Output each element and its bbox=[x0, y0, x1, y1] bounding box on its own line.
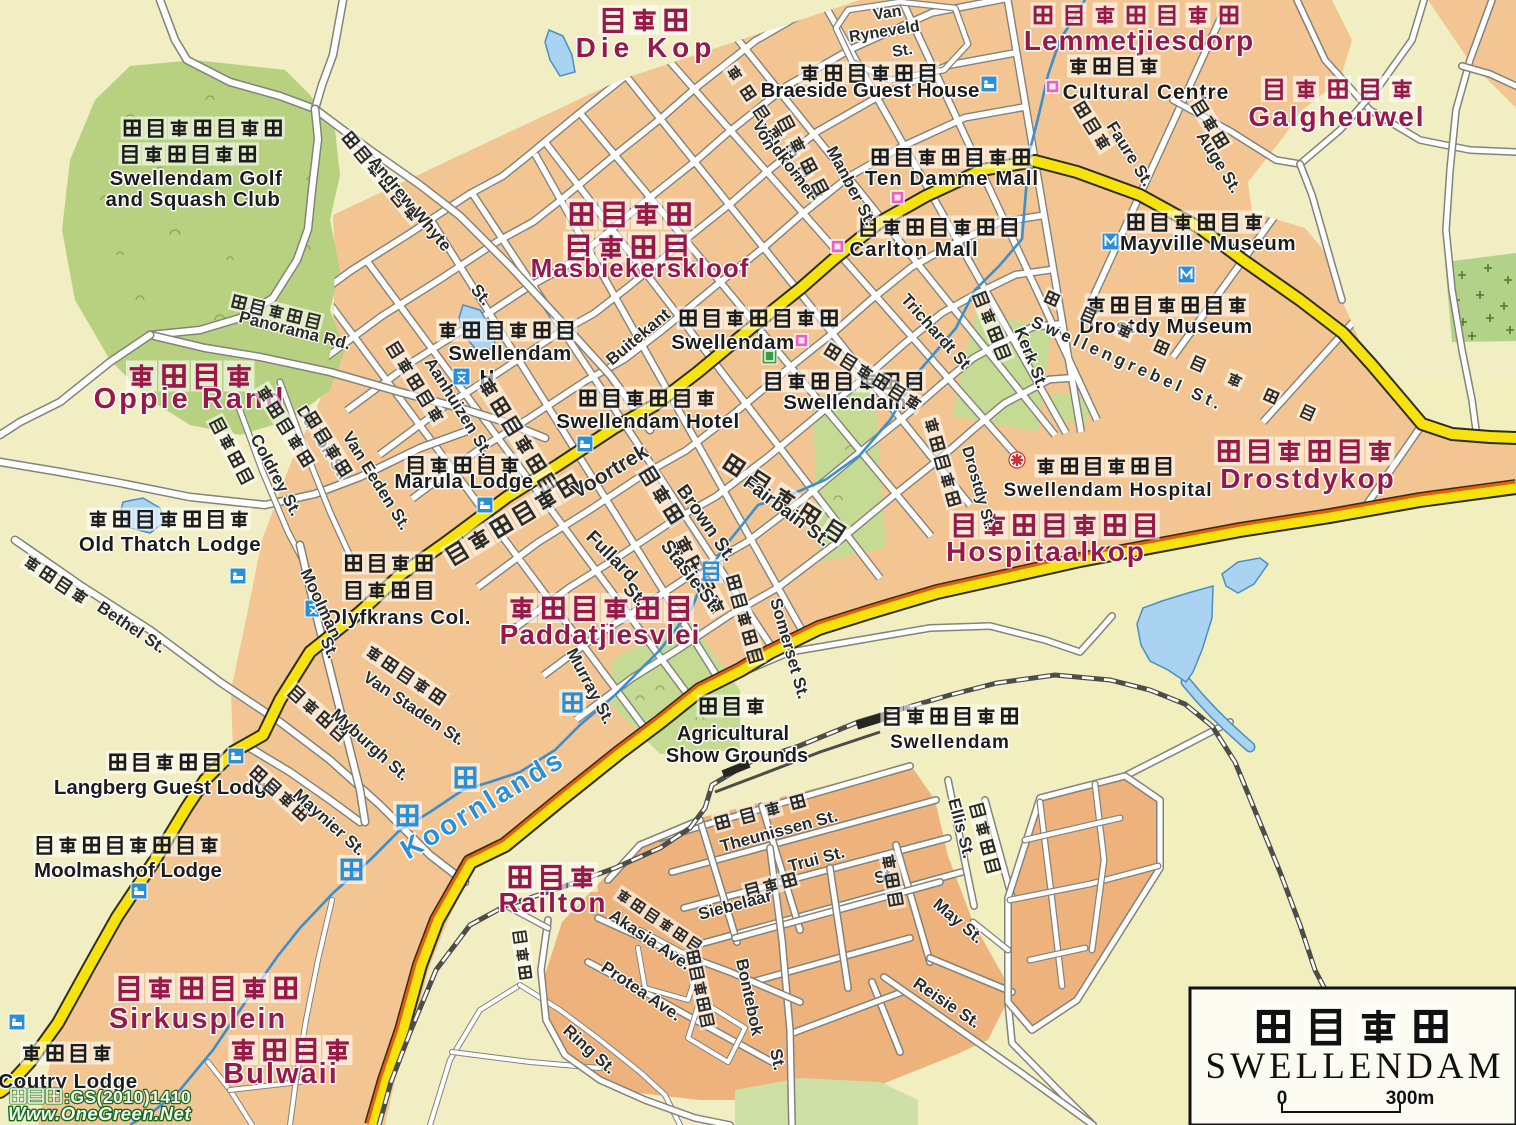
svg-text:Show Grounds: Show Grounds bbox=[666, 745, 808, 767]
svg-text:Olyfkrans Col.: Olyfkrans Col. bbox=[325, 606, 471, 629]
svg-text:Braeside Guest House: Braeside Guest House bbox=[761, 79, 980, 102]
svg-text:Swellendam Hotel: Swellendam Hotel bbox=[556, 410, 739, 433]
svg-text:Old Thatch Lodge: Old Thatch Lodge bbox=[79, 533, 261, 556]
svg-text:Moolmashof Lodge: Moolmashof Lodge bbox=[34, 859, 222, 882]
svg-text:Swellendam Hospital: Swellendam Hospital bbox=[1003, 480, 1212, 501]
svg-text:Agricultural: Agricultural bbox=[677, 723, 789, 745]
svg-text:Www.OneGreen.Net: Www.OneGreen.Net bbox=[8, 1103, 191, 1124]
svg-text:Swellendam Golf: Swellendam Golf bbox=[110, 167, 283, 190]
svg-text:300m: 300m bbox=[1386, 1088, 1435, 1109]
svg-text:Drostdy Museum: Drostdy Museum bbox=[1079, 315, 1252, 338]
svg-text:Masbiekerskloof: Masbiekerskloof bbox=[531, 253, 750, 283]
svg-text:Ten Damme Mall: Ten Damme Mall bbox=[865, 167, 1039, 190]
svg-text:Swellendam: Swellendam bbox=[890, 732, 1010, 753]
svg-text:Die Kop: Die Kop bbox=[576, 32, 717, 63]
svg-text:Lemmetjiesdorp: Lemmetjiesdorp bbox=[1024, 25, 1254, 56]
svg-text:Galgheuwel: Galgheuwel bbox=[1248, 101, 1425, 132]
svg-text:Bulwaii: Bulwaii bbox=[223, 1058, 339, 1090]
svg-text:Sirkusplein: Sirkusplein bbox=[109, 1003, 287, 1035]
svg-text:Railton: Railton bbox=[499, 887, 608, 918]
svg-text:and Squash Club: and Squash Club bbox=[106, 188, 281, 211]
svg-text:Carlton Mall: Carlton Mall bbox=[849, 238, 978, 261]
svg-text:Hospitaalkop: Hospitaalkop bbox=[946, 536, 1146, 567]
svg-text:Drostdykop: Drostdykop bbox=[1220, 463, 1396, 494]
svg-text:Swellendam: Swellendam bbox=[671, 331, 795, 354]
svg-text:Paddatjiesvlei: Paddatjiesvlei bbox=[500, 619, 701, 650]
svg-text:SWELLENDAM: SWELLENDAM bbox=[1206, 1046, 1505, 1087]
svg-text:Marula Lodge: Marula Lodge bbox=[394, 470, 533, 493]
svg-text:St.: St. bbox=[891, 41, 914, 61]
svg-text:Swellendam: Swellendam bbox=[448, 342, 572, 365]
svg-text:Mayville Museum: Mayville Museum bbox=[1120, 232, 1296, 255]
svg-text:Langberg Guest Lodge: Langberg Guest Lodge bbox=[54, 776, 278, 799]
